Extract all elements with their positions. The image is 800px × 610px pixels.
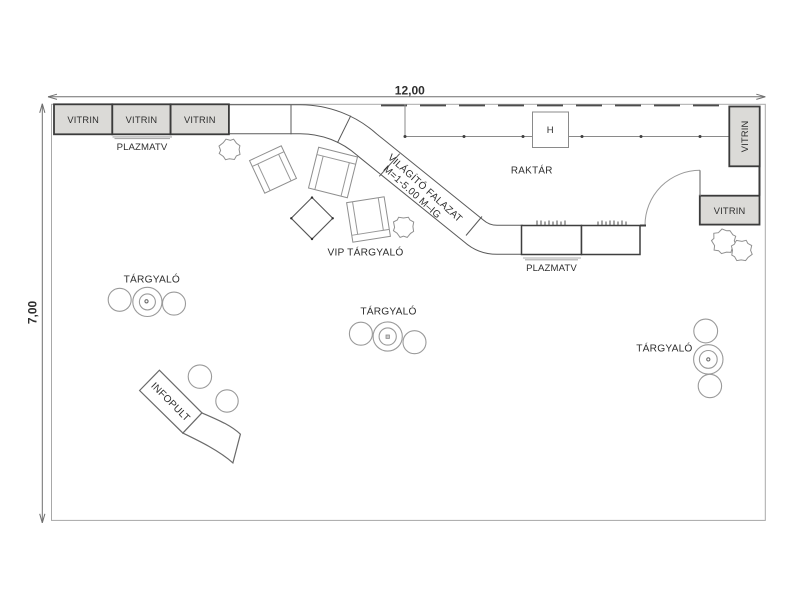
svg-text:VITRIN: VITRIN [67,115,99,125]
svg-text:TÁRGYALÓ: TÁRGYALÓ [636,342,692,355]
svg-text:VITRIN: VITRIN [740,121,750,153]
svg-text:TÁRGYALÓ: TÁRGYALÓ [360,304,416,317]
svg-text:RAKTÁR: RAKTÁR [511,166,553,177]
svg-text:VITRIN: VITRIN [126,115,158,125]
svg-text:VITRIN: VITRIN [714,206,746,216]
svg-text:7,00: 7,00 [26,300,40,324]
svg-text:PLAZMATV: PLAZMATV [117,142,168,153]
svg-text:H: H [547,125,554,136]
svg-text:TÁRGYALÓ: TÁRGYALÓ [124,272,180,285]
svg-text:PLAZMATV: PLAZMATV [526,263,577,274]
svg-text:VIP TÁRGYALÓ: VIP TÁRGYALÓ [327,245,403,258]
svg-text:12,00: 12,00 [395,84,425,98]
svg-text:VITRIN: VITRIN [184,115,216,125]
